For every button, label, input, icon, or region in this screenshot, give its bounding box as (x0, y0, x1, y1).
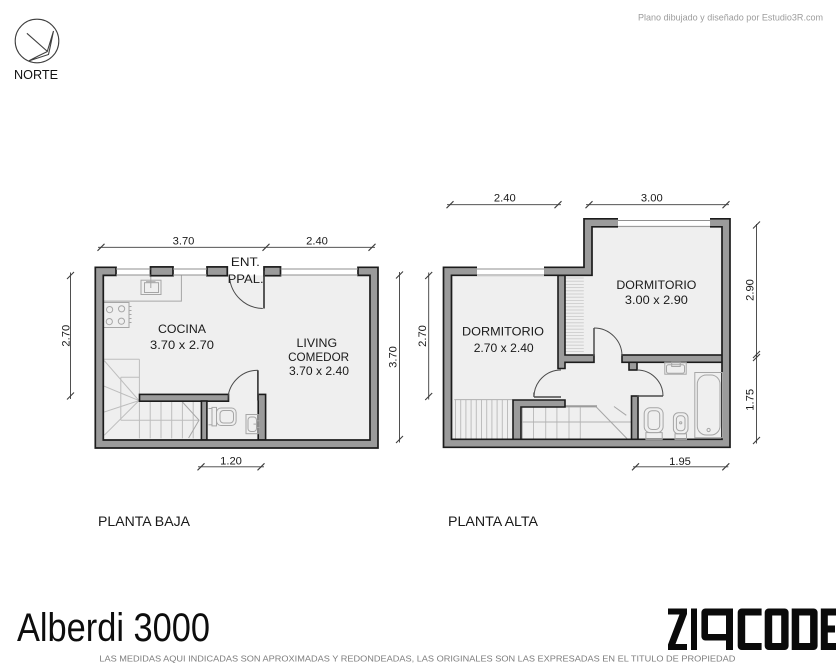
svg-text:1.75: 1.75 (745, 389, 757, 411)
svg-text:PLANTA ALTA: PLANTA ALTA (448, 513, 539, 529)
svg-text:COCINA: COCINA (158, 322, 207, 336)
svg-text:3.70: 3.70 (388, 346, 400, 368)
svg-text:3.00: 3.00 (641, 193, 663, 205)
svg-text:1.95: 1.95 (669, 456, 691, 468)
svg-text:DORMITORIO: DORMITORIO (462, 325, 544, 339)
svg-text:ENT.: ENT. (231, 255, 260, 269)
svg-text:2.70 x 2.40: 2.70 x 2.40 (474, 341, 534, 355)
svg-text:LAS MEDIDAS AQUI INDICADAS SON: LAS MEDIDAS AQUI INDICADAS SON APROXIMAD… (99, 655, 735, 664)
svg-text:COMEDOR: COMEDOR (288, 350, 349, 364)
svg-text:3.70: 3.70 (173, 235, 195, 247)
svg-text:1.20: 1.20 (220, 455, 242, 467)
svg-text:DORMITORIO: DORMITORIO (616, 278, 696, 292)
svg-text:Plano dibujado y diseñado por: Plano dibujado y diseñado por Estudio3R.… (638, 13, 823, 24)
svg-text:2.40: 2.40 (306, 235, 328, 247)
svg-text:2.90: 2.90 (745, 279, 757, 301)
svg-text:Alberdi 3000: Alberdi 3000 (17, 606, 210, 650)
svg-text:PPAL.: PPAL. (228, 272, 264, 286)
svg-text:NORTE: NORTE (14, 68, 58, 82)
svg-text:2.70: 2.70 (417, 325, 429, 347)
svg-text:3.70 x 2.70: 3.70 x 2.70 (150, 338, 214, 352)
svg-text:3.00 x 2.90: 3.00 x 2.90 (625, 293, 688, 307)
svg-text:PLANTA BAJA: PLANTA BAJA (98, 513, 191, 529)
svg-text:LIVING: LIVING (297, 336, 338, 350)
svg-text:3.70 x 2.40: 3.70 x 2.40 (289, 364, 349, 378)
svg-text:2.40: 2.40 (494, 193, 516, 205)
svg-text:2.70: 2.70 (61, 325, 73, 347)
